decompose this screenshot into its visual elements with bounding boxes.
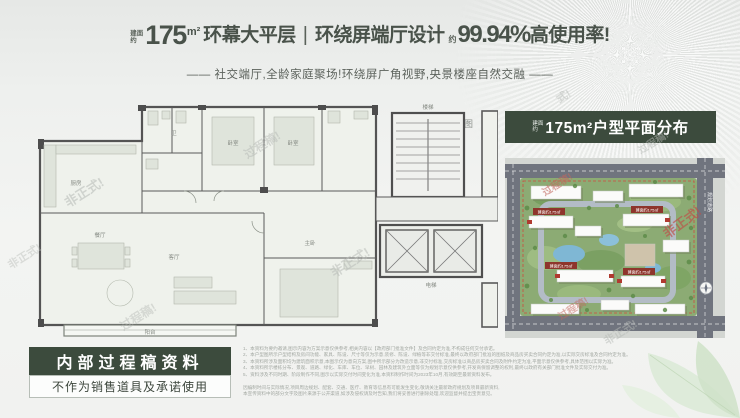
headline-left: 环幕大平层	[203, 24, 296, 48]
area-prefix: 建面 约	[130, 30, 143, 44]
siteplan-prefix-bottom: 约	[532, 127, 543, 133]
area-unit: m²	[187, 26, 200, 38]
unit-tag: 建面约175㎡	[538, 209, 561, 215]
road-label: 规划道路	[706, 192, 713, 212]
headline-mid: 环绕屏端厅设计	[315, 24, 445, 48]
siteplan-title-prefix: 建面 约	[532, 121, 543, 133]
leaf-decoration	[530, 323, 740, 418]
core-stairs	[392, 113, 464, 197]
not-for-sale-note: 不作为销售道具及承诺使用	[29, 375, 231, 398]
unit-tag: 建面约175㎡	[636, 207, 659, 213]
area-prefix-bottom: 约	[130, 37, 143, 44]
label-balcony: 阳台	[144, 328, 156, 336]
siteplan-title: 175m²户型平面分布	[545, 116, 688, 138]
label-dining: 餐厅	[94, 231, 106, 239]
siteplan-title-box: 建面 约 175m²户型平面分布	[505, 111, 716, 143]
label-bedroom1: 卧室	[227, 139, 239, 147]
internal-draft-stamp: 内部过程稿资料	[29, 347, 231, 375]
headline: 建面 约 175 m² 环幕大平层 | 环绕屏端厅设计 约 99.94% 高使用…	[0, 22, 740, 48]
rate-approx: 约	[449, 34, 457, 45]
area-value: 175	[145, 22, 186, 48]
core-elevators	[380, 225, 482, 277]
label-bath: 卫	[171, 130, 177, 137]
rate-suffix: 高使用率!	[530, 24, 610, 48]
unit-tag: 建面约175㎡	[628, 269, 651, 275]
label-living: 客厅	[168, 253, 180, 261]
floorplan-drawing: 客厅 餐厅 厨房 卧室 卧室 主卧 卫 阳台 楼梯 电梯	[24, 93, 498, 345]
label-kitchen: 厨房	[70, 179, 82, 187]
headline-divider: |	[303, 24, 308, 47]
compass-icon	[700, 282, 712, 294]
rate-value: 99.94%	[458, 22, 530, 48]
subtitle: —— 社交端厅,全龄家庭聚场!环绕屏广角视野,央景楼座自然交融 ——	[0, 66, 740, 82]
area-prefix-top: 建面	[130, 30, 143, 37]
label-elevator: 电梯	[425, 281, 437, 289]
label-stairs: 楼梯	[422, 103, 434, 111]
label-master: 主卧	[304, 239, 316, 247]
unit-tag: 建面约175㎡	[550, 263, 573, 269]
poster-page: 建面 约 175 m² 环幕大平层 | 环绕屏端厅设计 约 99.94% 高使用…	[0, 0, 740, 418]
label-bedroom2: 卧室	[287, 139, 299, 147]
siteplan-drawing: 建面约175㎡ 建面约175㎡ 建面约175㎡ 建面约175㎡ 规划道路	[505, 158, 725, 338]
